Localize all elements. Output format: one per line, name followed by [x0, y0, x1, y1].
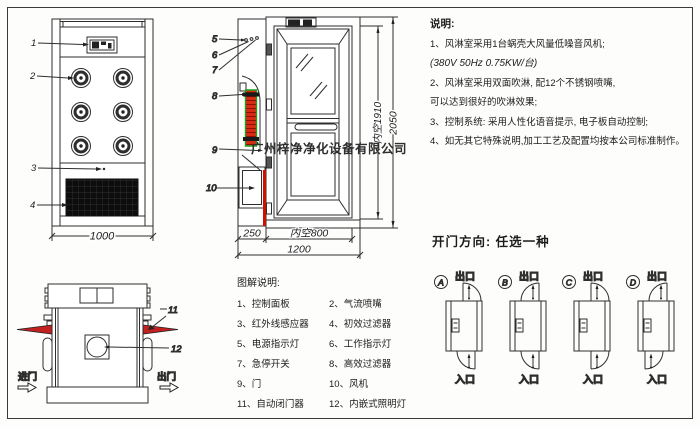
- side-callouts: 5 6 7 8 9 10: [206, 34, 218, 194]
- legend-item: 1、控制面板: [237, 295, 325, 315]
- door-direction-heading: 开门方向: 任选一种: [432, 231, 550, 250]
- intake-grille: [66, 179, 138, 216]
- legend-item: 8、高效过滤器: [329, 355, 406, 375]
- side-height-dimensions: 内空1910 2050: [360, 17, 400, 228]
- open-door-wing-left: [17, 325, 52, 334]
- legend-block: 图解说明: 1、控制面板2、气流喷嘴 3、红外线感应器4、初效过滤器 5、电源指…: [237, 274, 406, 415]
- note-line: 3、控制系统: 采用人性化语音提示, 电子板自动控制;: [430, 113, 696, 133]
- legend-item: 4、初效过滤器: [329, 315, 406, 335]
- callout-4: 4: [30, 200, 35, 211]
- callout-11: 11: [168, 305, 178, 316]
- front-width-dimension: 1000: [49, 226, 156, 243]
- exit-port-label: 出口: [647, 270, 667, 283]
- legend-item: 9、门: [237, 375, 325, 395]
- enter-label: 进门: [18, 371, 37, 383]
- callout-12: 12: [171, 344, 182, 355]
- door-swing-right: [143, 338, 152, 371]
- legend-item: 12、内嵌式照明灯: [329, 395, 406, 415]
- legend-title: 图解说明:: [237, 274, 406, 294]
- note-line: 可以达到很好的吹淋效果;: [430, 93, 696, 113]
- note-line: 2、风淋室采用双面吹淋, 配12个不锈钢喷嘴,: [430, 74, 696, 94]
- hinge-icon: [267, 44, 272, 55]
- note-line: 4、如无其它特殊说明,加工工艺及配置均按本公司标准制作。: [430, 132, 696, 152]
- company-watermark: 广州梓净净化设备有限公司: [251, 138, 407, 157]
- callout-2: 2: [29, 71, 36, 82]
- dim-1000: 1000: [90, 231, 115, 243]
- top-view: 11 12 进门 出门: [17, 284, 182, 403]
- dim-1200: 1200: [287, 244, 311, 256]
- option-letter: C: [566, 278, 573, 288]
- enter-arrow-icon: [18, 383, 36, 392]
- exit-port-label: 出口: [455, 270, 475, 283]
- callout-3: 3: [31, 163, 37, 174]
- side-width-dimensions: 250 内空800 1200: [235, 226, 363, 259]
- legend-item: 3、红外线感应器: [237, 315, 325, 335]
- exit-label: 出门: [157, 371, 176, 383]
- notes-title: 说明:: [430, 15, 696, 35]
- door-option-b: B 出口 入口: [499, 270, 547, 386]
- entry-port-label: 入口: [455, 374, 475, 386]
- door-swing-left: [43, 338, 52, 371]
- callout-5: 5: [212, 34, 218, 45]
- callout-7: 7: [212, 65, 218, 76]
- dim-inner-width: 内空800: [290, 228, 329, 240]
- dim-250: 250: [242, 228, 261, 240]
- entry-port-label: 入口: [583, 374, 603, 386]
- entry-port-label: 入口: [519, 374, 539, 386]
- door-option-a: A 出口 入口: [435, 270, 483, 386]
- callout-10: 10: [206, 183, 217, 194]
- note-line-power: (380V 50Hz 0.75KW/台): [430, 54, 696, 74]
- option-letter: A: [437, 278, 444, 288]
- exit-port-label: 出口: [519, 270, 539, 283]
- callout-6: 6: [212, 50, 218, 61]
- note-line: 1、风淋室采用1台蜗壳大风量低噪音风机;: [430, 35, 696, 55]
- door-option-d: D 出口 入口: [627, 270, 675, 386]
- legend-item: 7、急停开关: [237, 355, 325, 375]
- drawing-sheet: 1 2 3 4 1000: [0, 0, 700, 427]
- door: [263, 17, 360, 228]
- legend-item: 5、电源指示灯: [237, 335, 325, 355]
- callout-1: 1: [31, 38, 36, 49]
- dim-total-height: 2050: [388, 111, 400, 136]
- door-option-c: C 出口 入口: [563, 270, 611, 386]
- option-letter: B: [502, 278, 508, 288]
- callout-8: 8: [212, 91, 218, 102]
- entry-port-label: 入口: [647, 374, 667, 386]
- exit-arrow-icon: [160, 383, 178, 392]
- callout-9: 9: [212, 145, 218, 156]
- option-letter: D: [630, 278, 636, 288]
- legend-item: 11、自动闭门器: [237, 395, 325, 415]
- exit-port-label: 出口: [583, 270, 603, 283]
- front-view: 1 2 3 4 1000: [29, 19, 156, 243]
- legend-item: 6、工作指示灯: [329, 335, 406, 355]
- legend-item: 2、气流喷嘴: [329, 295, 406, 315]
- legend-item: 10、风机: [329, 375, 406, 395]
- notes-block: 说明: 1、风淋室采用1台蜗壳大风量低噪音风机; (380V 50Hz 0.75…: [430, 15, 696, 152]
